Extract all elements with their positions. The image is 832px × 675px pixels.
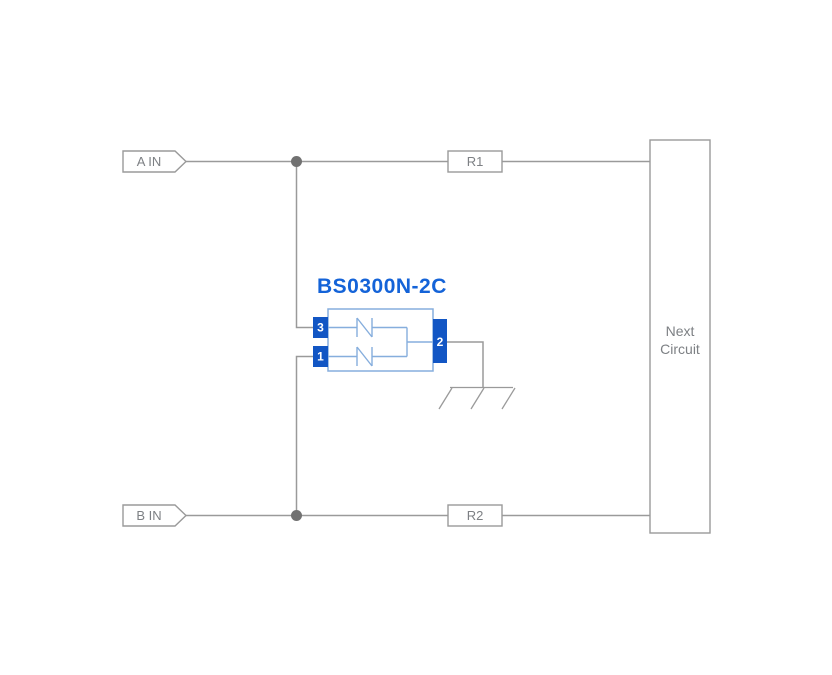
circuit-diagram: A IN B IN R1 R2 Next Circuit BS0300N-2C [0,0,832,675]
tvs-component: BS0300N-2C [313,275,447,371]
wire-junction-b-to-pin1 [297,357,314,516]
resistor-r1-label: R1 [467,154,484,169]
chassis-ground-icon [439,388,515,410]
input-b-label: B IN [136,508,161,523]
pin-2-number: 2 [437,335,444,349]
input-b-tag: B IN [123,505,186,526]
schematic-canvas: A IN B IN R1 R2 Next Circuit BS0300N-2C [0,0,832,675]
pin-2: 2 [433,319,447,363]
wire-pin2-to-ground [447,342,483,387]
pin-3-number: 3 [317,321,324,335]
component-title: BS0300N-2C [317,275,447,298]
input-a-tag: A IN [123,151,186,172]
component-body [328,309,433,371]
resistor-r2: R2 [448,505,502,526]
resistor-r1: R1 [448,151,502,172]
input-a-label: A IN [137,154,162,169]
junction-dot-a [291,156,302,167]
pin-3: 3 [313,317,328,338]
pin-1-number: 1 [317,350,324,364]
next-circuit-label-line2: Circuit [660,341,700,357]
next-circuit-label-line1: Next [666,323,695,339]
ground-slash-3 [502,388,515,409]
resistor-r2-label: R2 [467,508,484,523]
wire-junction-a-to-pin3 [297,162,314,328]
pin-1: 1 [313,346,328,367]
ground-slash-1 [439,388,452,409]
ground-slash-2 [471,388,484,409]
next-circuit-block: Next Circuit [650,140,710,533]
junction-dot-b [291,510,302,521]
